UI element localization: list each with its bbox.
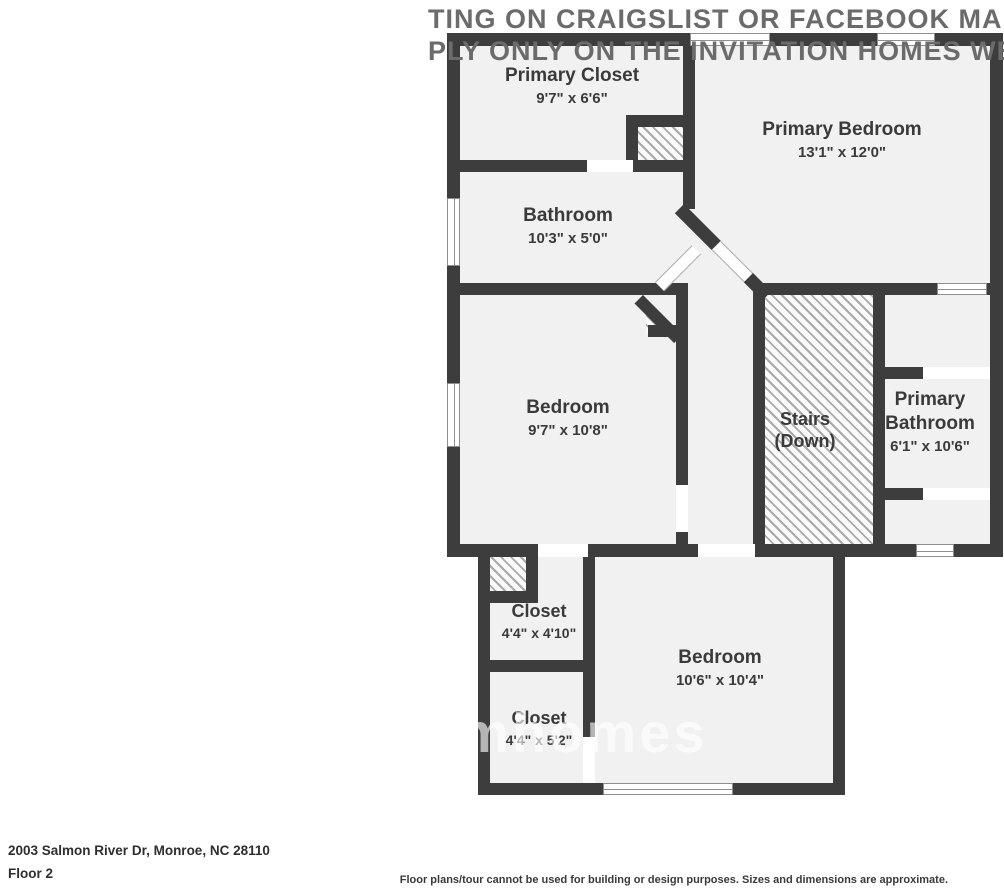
room-dims: 4'4" x 4'10"	[479, 625, 599, 641]
wall-chase-left	[626, 115, 638, 165]
room-name: Primary Bathroom	[874, 388, 986, 436]
room-name: Stairs	[745, 408, 865, 431]
door-bedroom	[676, 485, 688, 532]
floor-plan-canvas: TING ON CRAIGSLIST OR FACEBOOK MARKET PL…	[0, 0, 1004, 889]
room-name: Primary Bedroom	[742, 118, 942, 142]
watermark-top-line2: PLY ONLY ON THE INVITATION HOMES WEBSIT	[428, 36, 1004, 67]
room-label-bedroom: Bedroom 9'7" x 10'8"	[468, 396, 668, 439]
wall-primary-closet-divider	[447, 160, 587, 172]
door-primary-closet	[587, 160, 633, 172]
room-dims: 10'6" x 10'4"	[620, 672, 820, 689]
window-primary-bathroom	[916, 544, 954, 557]
stairs-direction: (Down)	[745, 431, 865, 452]
door-closet1	[538, 544, 588, 557]
wall-primary-bathroom-stub-bottom	[885, 488, 923, 500]
window-bathroom	[447, 198, 460, 266]
wall-upper-left	[447, 33, 460, 557]
wall-lower-chase-right	[526, 551, 538, 603]
room-name: Closet	[479, 600, 599, 623]
room-label-bedroom2: Bedroom 10'6" x 10'4"	[620, 646, 820, 689]
watermark-top: TING ON CRAIGSLIST OR FACEBOOK MARKET PL…	[428, 0, 1004, 70]
floor-upper-block	[453, 39, 997, 551]
room-dims: 9'7" x 10'8"	[468, 422, 668, 439]
wall-primary-bathroom-stub-top	[885, 367, 923, 379]
room-label-closet1: Closet 4'4" x 4'10"	[479, 600, 599, 641]
watermark-top-line1: TING ON CRAIGSLIST OR FACEBOOK MARKET	[428, 4, 1004, 35]
address-text: 2003 Salmon River Dr, Monroe, NC 28110	[8, 843, 270, 858]
wall-lower-right	[833, 557, 845, 795]
watermark-center: omhomes	[422, 700, 708, 765]
door-primary-bathroom-top	[923, 367, 990, 379]
room-name: Bedroom	[620, 646, 820, 670]
wall-bedroom-right	[676, 295, 688, 485]
floor-number-text: Floor 2	[8, 866, 53, 881]
door-lower-bedroom	[698, 544, 755, 557]
wall-bathroom-bedroom-divider	[447, 283, 688, 295]
door-primary-bathroom-bottom	[923, 488, 990, 500]
wall-bedroom-right-stub	[676, 532, 688, 544]
room-label-stairs: Stairs (Down)	[745, 408, 865, 452]
room-name: Bathroom	[468, 204, 668, 228]
room-dims: 6'1" x 10'6"	[874, 438, 986, 455]
chase-hatch-upper	[638, 127, 683, 160]
room-label-primary-closet: Primary Closet 9'7" x 6'6"	[472, 64, 672, 107]
window-bedroom	[447, 383, 460, 447]
room-dims: 10'3" x 5'0"	[468, 230, 668, 247]
disclaimer-text: Floor plans/tour cannot be used for buil…	[400, 874, 948, 886]
room-label-bathroom: Bathroom 10'3" x 5'0"	[468, 204, 668, 247]
room-dims: 13'1" x 12'0"	[742, 144, 942, 161]
window-lower-bedroom	[603, 783, 733, 795]
wall-upper-right	[990, 33, 1003, 557]
window-primary-bedroom-bottom	[937, 283, 987, 295]
room-name: Bedroom	[468, 396, 668, 420]
room-label-primary-bathroom: Primary Bathroom 6'1" x 10'6"	[874, 388, 986, 455]
room-label-primary-bedroom: Primary Bedroom 13'1" x 12'0"	[742, 118, 942, 161]
chase-hatch-lower	[487, 551, 526, 591]
wall-closets-divider	[478, 660, 595, 672]
room-dims: 9'7" x 6'6"	[472, 90, 672, 107]
